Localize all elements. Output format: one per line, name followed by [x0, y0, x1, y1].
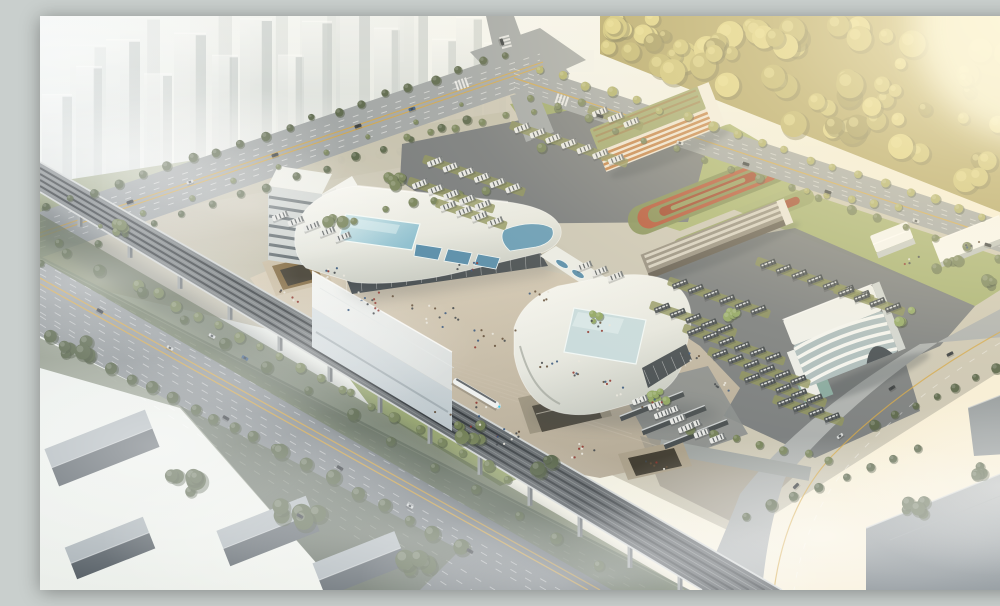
scene-canvas: Aerial architectural rendering of an int… — [40, 16, 1000, 590]
sunlight-overlay — [40, 16, 1000, 590]
atmosphere-fog-sunlight — [40, 16, 1000, 590]
architectural-rendering: Aerial architectural rendering of an int… — [40, 16, 1000, 590]
